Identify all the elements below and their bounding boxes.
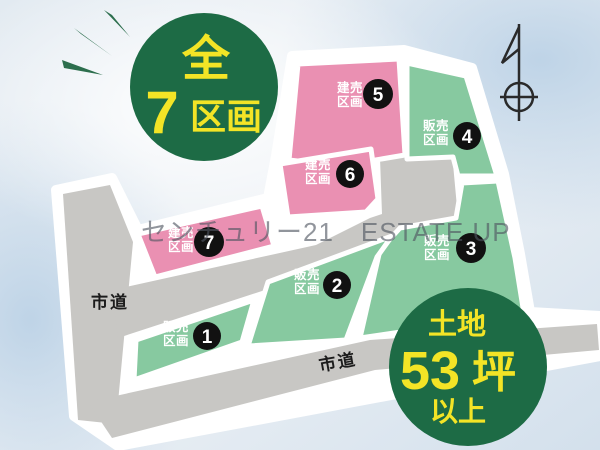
land-area-label: 土地 xyxy=(428,308,486,341)
plot-5-label-bottom: 区画 xyxy=(337,95,363,109)
plot-4-number: 4 xyxy=(462,127,473,148)
plot-6-label-top: 建売 xyxy=(305,157,331,172)
road-label-left: 市道 xyxy=(91,292,129,312)
plot-5: 建売 区画 5 xyxy=(289,59,405,166)
plot-2-label-top: 販売 xyxy=(294,267,320,282)
plot-6-number: 6 xyxy=(345,165,356,186)
land-area-value: 53 xyxy=(400,341,460,401)
total-plots-label: 全 xyxy=(181,32,231,86)
plot-6-label-bottom: 区画 xyxy=(305,172,331,186)
total-plots-count-suffix: 区画 xyxy=(190,96,262,137)
plot-1-number: 1 xyxy=(202,327,213,348)
site-plan-canvas: 建売 区画 5 販売 区画 4 建売 区画 6 建売 区画 7 販売 区画 3 xyxy=(0,0,600,450)
land-area-suffix: 以上 xyxy=(430,396,486,427)
plot-1-label-bottom: 区画 xyxy=(163,334,189,348)
total-plots-count: 7 xyxy=(145,79,178,146)
plot-5-label-top: 建売 xyxy=(337,80,363,95)
plot-4-label-top: 販売 xyxy=(423,118,449,133)
lot-map-flyer: 建売 区画 5 販売 区画 4 建売 区画 6 建売 区画 7 販売 区画 3 xyxy=(0,0,600,450)
plot-2-label-bottom: 区画 xyxy=(294,282,320,296)
plot-2-number: 2 xyxy=(332,276,343,297)
plot-5-number: 5 xyxy=(373,85,384,106)
plot-5-area xyxy=(289,59,405,166)
plot-4-label-bottom: 区画 xyxy=(423,133,449,147)
plot-3-label-bottom: 区画 xyxy=(424,248,450,262)
watermark-text: センチュリー21 ESTATE UP xyxy=(141,217,511,247)
land-area-badge: 土地 53 坪 以上 xyxy=(389,288,547,446)
plot-1-label-top: 販売 xyxy=(163,319,189,334)
plot-6: 建売 区画 6 xyxy=(280,149,378,217)
land-area-unit: 坪 xyxy=(472,348,516,397)
